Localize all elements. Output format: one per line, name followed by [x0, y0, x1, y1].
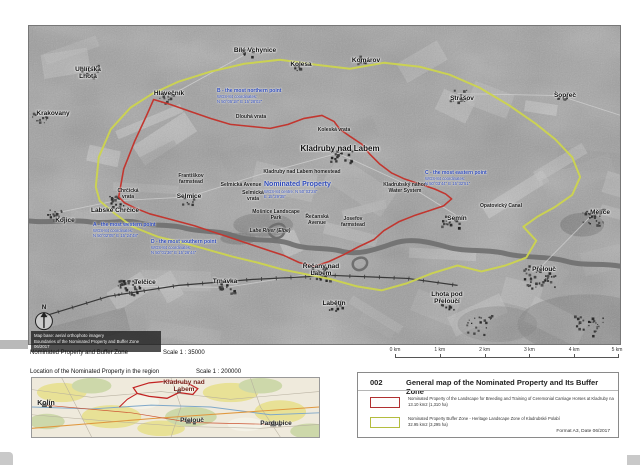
legend-area: 13.10 km2 (1,310 ha)	[408, 402, 448, 407]
scale-tick-label: 3 km	[524, 347, 535, 353]
map-label-town: Uhlířská Lhota	[66, 66, 110, 80]
page-edge-artifact	[627, 455, 640, 465]
format-date-note: Format A3, Date 06/2017	[556, 429, 610, 434]
inset-label-town: Pardubice	[260, 420, 291, 427]
map-label-town: Trnávka	[213, 278, 238, 285]
inset-label-town: Kolín	[37, 400, 55, 407]
document-page: Uhlířská Lhota Krakovany Hlavečník Bílé …	[0, 0, 640, 465]
annotation-line: N 50°03'44" E 15°32'51"	[425, 181, 487, 186]
map-label-town: Labské Chrčice	[91, 207, 139, 214]
map-label-feature: Opatovický Canal	[480, 204, 522, 210]
scale-bar: 0 km 1 km 2 km 3 km 4 km 5 km	[395, 347, 619, 361]
annotation-north-point: B - the most northern point WGS-84 coord…	[217, 88, 281, 104]
map-label-town: Lhota pod Přeloučí	[422, 291, 472, 305]
map-label-town: Sopřeč	[554, 92, 576, 99]
scale-tick-label: 2 km	[479, 347, 490, 353]
compass-north-label: N	[42, 305, 46, 311]
map-label-feature: Kladrubský náhon Water System	[380, 183, 430, 194]
legend-label: Nominated Property Buffer Zone - Heritag…	[408, 416, 614, 421]
map-label-feature: Kladruby nad Labem homestead	[263, 170, 340, 176]
map-label-town: Labětín	[322, 300, 345, 307]
credit-line: 06/2017	[34, 344, 158, 350]
scale-tick-label: 4 km	[569, 347, 580, 353]
inset-label-town: Přelouč	[180, 417, 204, 424]
map-label-town: Strašov	[450, 95, 474, 102]
map-label-town: Přelouč	[532, 266, 556, 273]
annotation-line: N 50°01'36" E 15°26'44"	[151, 250, 216, 255]
main-map: Uhlířská Lhota Krakovany Hlavečník Bílé …	[28, 25, 621, 345]
scale-bar-line	[395, 357, 619, 358]
legend-swatch-property	[370, 397, 400, 408]
annotation-line: N 50°05'18" E 15°28'02"	[217, 99, 281, 104]
title-divider	[358, 390, 618, 391]
map-label-feature: Dlouhá vrata	[236, 115, 266, 121]
title-block: 002 General map of the Nominated Propert…	[357, 372, 619, 438]
main-map-scale: Scale 1 : 35000	[163, 350, 205, 356]
map-label-town: Telčice	[134, 279, 156, 286]
scale-tick	[395, 354, 396, 358]
annotation-line: N 50°02'05" E 15°24'48"	[93, 233, 156, 238]
map-label-town: Bílé Vchynice	[234, 47, 276, 54]
main-map-caption: Nominated Property and Buffer Zone	[30, 350, 128, 356]
annotation-east-point: C - the most eastern point WGS-84 coordi…	[425, 170, 487, 186]
inset-map-caption: Location of the Nominated Property in th…	[30, 369, 159, 375]
page-edge-artifact	[0, 340, 28, 349]
annotation-west-point: A - the most western point WGS-84 coordi…	[93, 222, 156, 238]
page-edge-artifact	[0, 452, 13, 465]
map-title: General map of the Nominated Property an…	[406, 378, 618, 396]
inset-label-town: Kladruby nad Labem	[157, 379, 211, 393]
map-label-feature: Mošnice Landscape Park	[252, 210, 300, 221]
scale-tick	[618, 354, 619, 358]
map-label-feature: Josefov farmstead	[335, 217, 371, 228]
map-label-town: Hlavečník	[154, 90, 184, 97]
legend-area: 32.95 km2 (3,295 ha)	[408, 422, 448, 427]
map-label-town: Mělice	[590, 209, 610, 216]
legend-swatch-buffer	[370, 417, 400, 428]
map-label-town: Řečany nad Labem	[292, 263, 350, 277]
legend-label: Nominated Property of the Landscape for …	[408, 396, 614, 401]
scale-tick-label: 1 km	[434, 347, 445, 353]
map-number: 002	[370, 378, 383, 387]
map-label-town: Kolesa	[290, 61, 311, 68]
map-credits: Map base: aerial orthophoto imagery Boun…	[31, 331, 161, 352]
map-label-town: Komárov	[352, 57, 380, 64]
map-label-town: Krakovany	[36, 110, 69, 117]
map-label-feature: Koleská vrata	[318, 128, 351, 134]
map-label-town: Selmice	[177, 193, 202, 200]
scale-tick	[574, 354, 575, 358]
map-label-feature: Františkov farmstead	[171, 174, 211, 185]
map-label-feature: Chrčická vrata	[112, 189, 144, 200]
scale-tick	[440, 354, 441, 358]
map-label-town: Kojice	[55, 217, 75, 224]
annotation-nominated-property: Nominated Property WGS-84 centre: N 50°0…	[264, 181, 331, 199]
map-label-town: Semín	[447, 215, 467, 222]
scale-tick	[485, 354, 486, 358]
scale-tick	[529, 354, 530, 358]
map-label-feature: Řečanská Avenue	[297, 215, 337, 226]
annotation-line: E 15°29'35"	[264, 194, 331, 199]
scale-tick-label: 5 km	[612, 347, 623, 353]
scale-tick-label: 0 km	[390, 347, 401, 353]
map-label-river: Labe River (Elbe)	[250, 229, 291, 235]
map-label-feature: Selmická Avenue	[221, 183, 262, 189]
annotation-south-point: D - the most southern point WGS-84 coord…	[151, 239, 216, 255]
inset-location-map: Kolín Kladruby nad Labem Přelouč Pardubi…	[31, 377, 320, 438]
map-label-town: Kladruby nad Labem	[300, 145, 379, 154]
inset-map-scale: Scale 1 : 200000	[196, 369, 241, 375]
